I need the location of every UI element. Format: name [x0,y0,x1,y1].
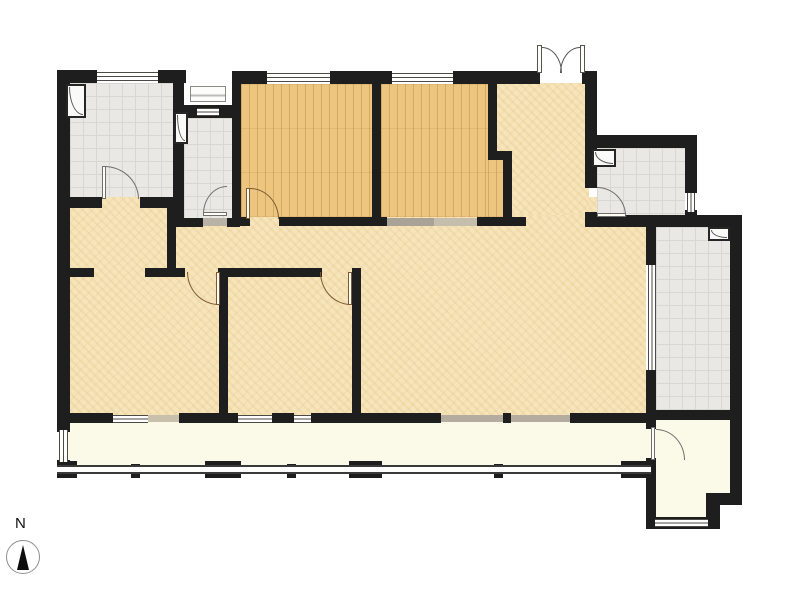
window-bathroom-1 [97,72,158,81]
room-b-door-leaf [348,272,352,305]
wall [167,207,176,276]
entrance-door-left-leaf [537,45,542,73]
wall [330,71,392,84]
wall [232,71,241,226]
wall [585,135,697,148]
window-bedroom-1 [267,73,330,82]
balcony-ext-door-leaf [651,427,655,460]
flue-shaft-icon [592,149,616,167]
wall [272,413,294,423]
bedroom-2-threshold-a [387,218,434,226]
wall [57,70,70,432]
wall [685,148,697,193]
wall [311,413,441,423]
window-balcony-ext [655,519,708,527]
wall [176,218,203,227]
floor-plan-canvas: N [0,0,800,600]
window-sill [148,415,179,422]
bathroom-2-door-leaf [597,213,626,217]
wall [57,197,102,208]
window-room-b [238,415,272,423]
wall [646,223,656,265]
wall [706,493,742,505]
window-bedroom-2 [392,73,453,82]
north-arrow-icon [17,545,29,570]
flue-shaft-icon [708,227,730,241]
wall [140,197,184,208]
entrance-door-right-swing-icon [560,47,580,73]
entrance-door-right-leaf [580,45,585,73]
wall [488,71,497,159]
wall [219,276,228,416]
bedroom-1-door-leaf [246,188,250,219]
wall [570,413,648,423]
bedroom-2-floor-ext [488,159,504,217]
north-label: N [15,516,26,531]
storage-threshold [203,218,227,226]
window-balcony-left [59,430,68,462]
window-room-c [294,415,311,423]
window-niche [197,108,219,116]
kitchen-sliding-door [648,265,656,370]
wall [173,70,184,218]
kitchen-floor [656,227,730,410]
wall [145,268,185,277]
balcony-floor [62,420,646,465]
bathroom-1-door-leaf [102,166,106,199]
window-bathroom-2 [687,193,695,212]
entrance-door-left-swing-icon [542,47,562,73]
balcony-railing [57,465,651,474]
wall [477,217,526,226]
wall [730,215,742,500]
wall [352,268,361,418]
wall [646,410,742,420]
room-a-door-leaf [216,272,220,305]
flue-shaft-icon [174,112,188,144]
balcony-ext-floor-2 [656,505,708,517]
wall [503,151,512,226]
wall [62,268,94,277]
window-room-a [113,415,148,423]
wall [179,413,238,423]
ac-outdoor-unit [190,86,226,102]
bedroom-2-threshold-b [434,218,477,226]
wall [372,71,381,226]
wall [279,217,387,226]
wall [503,413,511,423]
bedroom-2-floor [381,84,488,217]
flue-shaft-icon [66,84,86,118]
wall [57,413,113,423]
storage-door-leaf [203,212,227,216]
wall [646,478,656,523]
wall [218,268,322,277]
